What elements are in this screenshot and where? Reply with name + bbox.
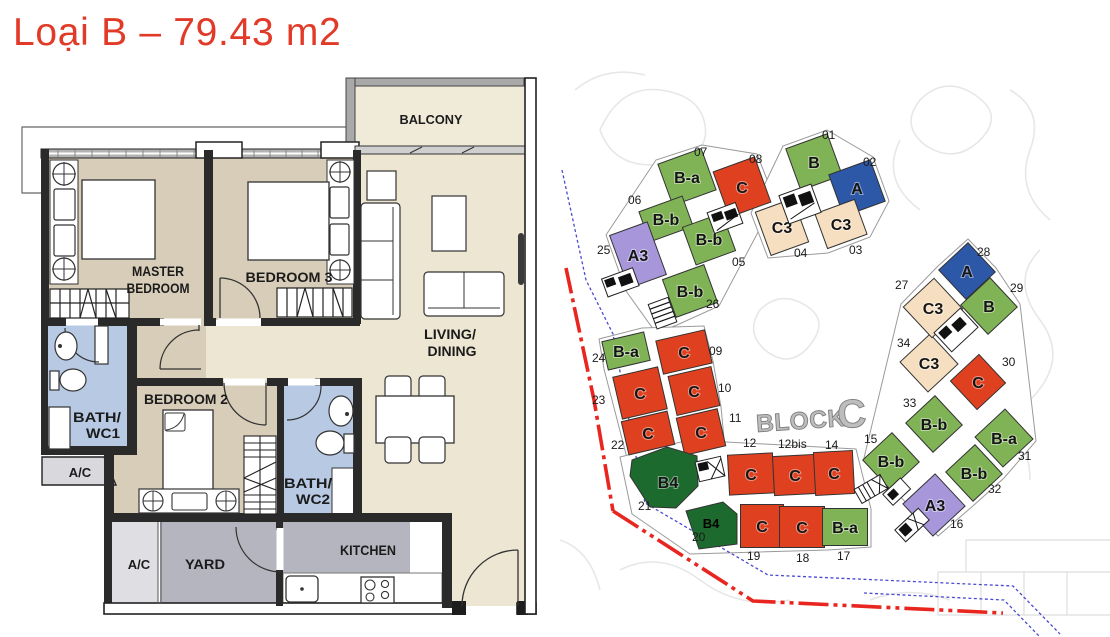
svg-text:WC1: WC1 (86, 426, 121, 441)
svg-text:C: C (745, 467, 757, 484)
svg-text:22: 22 (611, 438, 625, 452)
svg-text:A: A (851, 181, 863, 198)
svg-text:C: C (789, 468, 801, 485)
svg-text:C: C (796, 520, 808, 537)
svg-text:YARD: YARD (185, 557, 225, 572)
svg-text:BATH/: BATH/ (73, 410, 121, 425)
svg-text:30: 30 (1002, 355, 1016, 369)
svg-text:23: 23 (592, 393, 606, 407)
svg-text:C3: C3 (923, 301, 944, 318)
svg-text:24: 24 (592, 351, 606, 365)
svg-text:C: C (678, 345, 690, 362)
svg-text:B4: B4 (703, 516, 720, 531)
svg-text:11: 11 (729, 411, 742, 425)
svg-text:B-b: B-b (921, 417, 948, 434)
svg-text:B-a: B-a (991, 431, 1017, 448)
svg-text:C: C (828, 466, 840, 483)
svg-text:A/C: A/C (128, 557, 151, 572)
svg-text:03: 03 (849, 243, 863, 257)
svg-text:B-a: B-a (832, 520, 858, 537)
svg-text:20: 20 (692, 530, 706, 544)
svg-text:BEDROOM 2: BEDROOM 2 (144, 392, 228, 407)
svg-text:LIVING/: LIVING/ (424, 327, 476, 342)
svg-text:27: 27 (895, 278, 909, 292)
svg-text:WC2: WC2 (296, 492, 330, 507)
svg-text:B-b: B-b (696, 232, 723, 249)
svg-text:06: 06 (628, 193, 642, 207)
svg-text:28: 28 (977, 245, 991, 259)
svg-text:B: B (983, 299, 995, 316)
svg-text:25: 25 (597, 243, 611, 257)
svg-text:B-b: B-b (878, 454, 905, 471)
svg-text:15: 15 (864, 432, 878, 446)
svg-text:34: 34 (897, 336, 911, 350)
svg-text:14: 14 (825, 438, 839, 452)
svg-text:C: C (695, 425, 707, 442)
svg-text:04: 04 (794, 246, 808, 260)
svg-text:12bis: 12bis (778, 437, 807, 451)
svg-text:BALCONY: BALCONY (400, 112, 463, 127)
svg-text:C: C (736, 180, 748, 197)
svg-text:31: 31 (1018, 449, 1032, 463)
svg-text:21: 21 (638, 499, 652, 513)
svg-text:19: 19 (747, 549, 761, 563)
svg-text:33: 33 (903, 396, 917, 410)
svg-text:08: 08 (749, 152, 763, 166)
svg-text:BEDROOM: BEDROOM (127, 281, 190, 296)
svg-text:C: C (642, 426, 654, 443)
svg-text:02: 02 (863, 155, 877, 169)
svg-text:C3: C3 (919, 356, 940, 373)
svg-text:17: 17 (837, 549, 851, 563)
svg-text:26: 26 (706, 297, 720, 311)
svg-text:C3: C3 (831, 217, 852, 234)
svg-text:B-a: B-a (674, 170, 700, 187)
svg-text:C: C (756, 519, 768, 536)
svg-text:B-b: B-b (653, 212, 680, 229)
svg-text:C: C (836, 391, 868, 437)
svg-text:07: 07 (694, 145, 708, 159)
svg-text:BEDROOM 3: BEDROOM 3 (246, 270, 334, 285)
svg-text:KITCHEN: KITCHEN (340, 543, 396, 558)
svg-text:B-a: B-a (613, 344, 639, 361)
svg-text:BATH/: BATH/ (284, 476, 332, 491)
svg-text:B: B (808, 155, 820, 172)
svg-text:C: C (688, 384, 700, 401)
svg-text:12: 12 (743, 436, 757, 450)
svg-text:B4: B4 (658, 475, 679, 492)
svg-text:16: 16 (950, 517, 964, 531)
svg-text:A/C: A/C (69, 465, 92, 480)
svg-text:MASTER: MASTER (132, 264, 184, 279)
svg-text:10: 10 (718, 381, 732, 395)
svg-text:A3: A3 (925, 498, 946, 515)
svg-text:09: 09 (709, 344, 723, 358)
svg-text:05: 05 (732, 255, 746, 269)
svg-text:Loại B – 79.43 m2: Loại B – 79.43 m2 (13, 11, 341, 54)
svg-text:C: C (634, 386, 646, 403)
svg-text:DINING: DINING (428, 344, 477, 359)
svg-text:B-b: B-b (677, 284, 704, 301)
svg-text:01: 01 (822, 128, 836, 142)
svg-text:A3: A3 (628, 248, 649, 265)
svg-text:B-b: B-b (961, 466, 988, 483)
svg-text:32: 32 (988, 482, 1002, 496)
svg-text:C: C (972, 375, 984, 392)
svg-text:18: 18 (796, 551, 810, 565)
svg-text:A: A (961, 264, 973, 281)
svg-text:29: 29 (1010, 281, 1024, 295)
